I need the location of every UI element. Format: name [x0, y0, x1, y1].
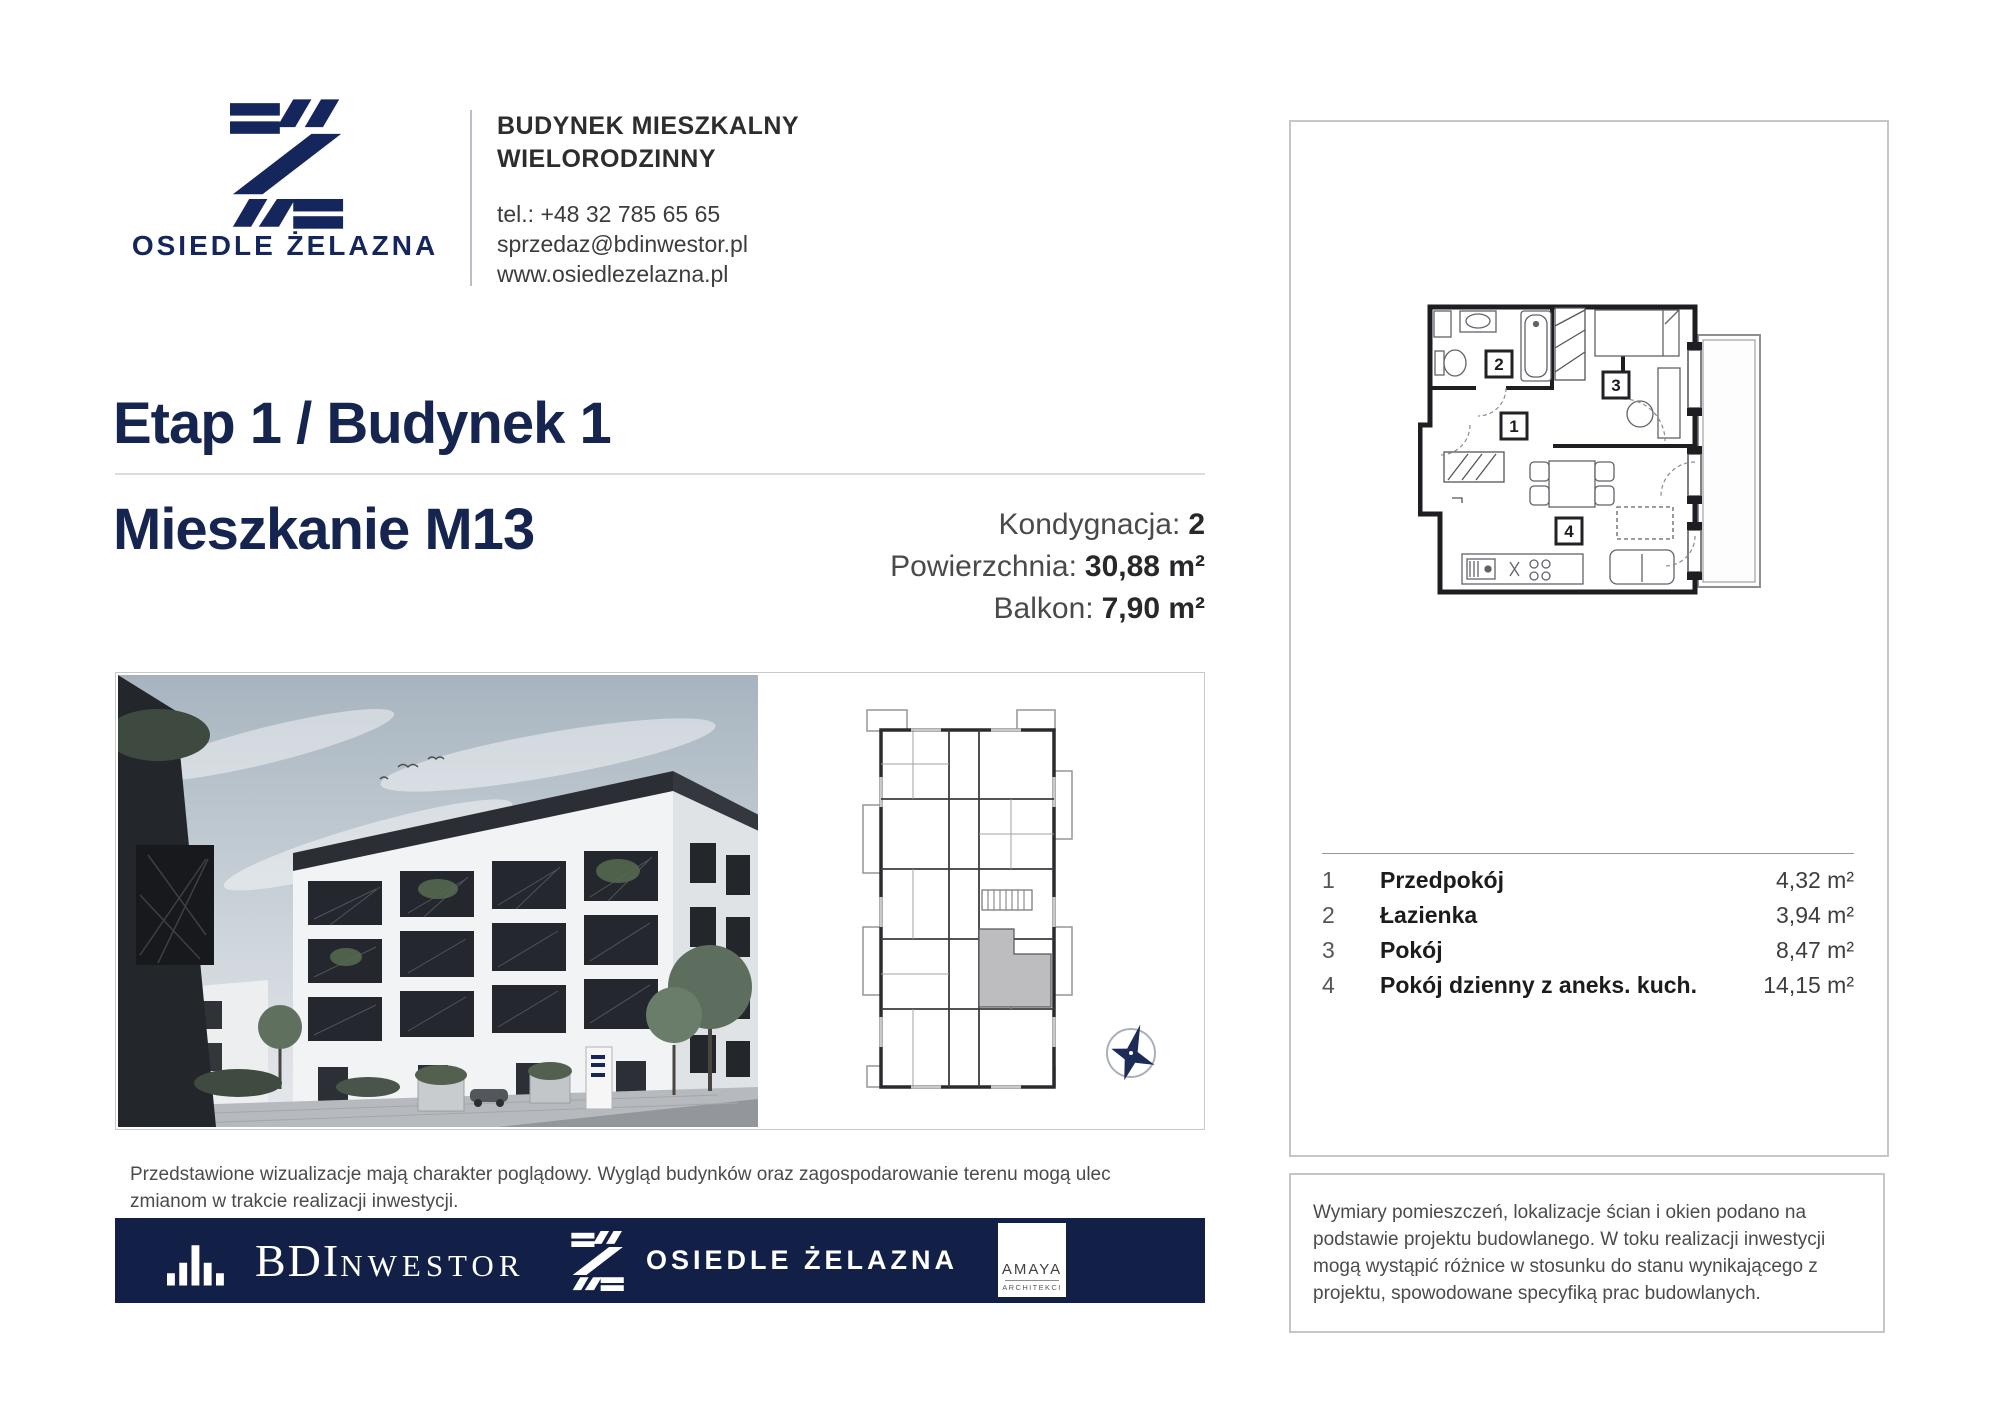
kitchen-fixtures [1462, 554, 1583, 584]
footer-bar: BDINWESTOR OSIEDLE ŻELAZNA AMAYA ARCHITE… [115, 1218, 1205, 1303]
estate-z-icon [570, 1231, 626, 1291]
website-link[interactable]: www.osiedlezelazna.pl [497, 259, 917, 289]
room-list-row: 2 Łazienka 3,94 m² [1322, 902, 1854, 937]
estate-sign [586, 1047, 612, 1109]
architect-sub: ARCHITEKCI [1002, 1283, 1061, 1292]
bdinwestor-bars-icon [167, 1235, 237, 1287]
summary-floor: Kondygnacja:2 [705, 508, 1205, 550]
apartment-floor-plan: 2 1 3 4 [1418, 302, 1768, 597]
brand-name: OSIEDLE ŻELAZNA [105, 230, 465, 262]
building-render-photo [118, 675, 758, 1127]
phone-number: tel.: +48 32 785 65 65 [497, 199, 917, 229]
header-divider [470, 110, 472, 286]
apartment-title: Mieszkanie M13 [113, 496, 534, 563]
room-list: 1 Przedpokój 4,32 m² 2 Łazienka 3,94 m² … [1322, 853, 1854, 1007]
architect-logo: AMAYA ARCHITEKCI [998, 1223, 1066, 1297]
plan-room-4: 4 [1564, 522, 1574, 541]
plan-room-1: 1 [1509, 417, 1518, 436]
building-type-line2: WIELORODZINNY [497, 143, 917, 176]
building-type-line1: BUDYNEK MIESZKALNY [497, 110, 917, 143]
osiedle-zelazna-logo-icon [230, 95, 345, 233]
apartment-flyer-page: OSIEDLE ŻELAZNA BUDYNEK MIESZKALNY WIELO… [0, 0, 2000, 1425]
room-list-row: 4 Pokój dzienny z aneks. kuch. 14,15 m² [1322, 972, 1854, 1007]
email-link[interactable]: sprzedaz@bdinwestor.pl [497, 229, 917, 259]
room-list-row: 1 Przedpokój 4,32 m² [1322, 867, 1854, 902]
stage-title: Etap 1 / Budynek 1 [113, 390, 611, 457]
room-list-row: 3 Pokój 8,47 m² [1322, 937, 1854, 972]
apartment-panel: 2 1 3 4 1 Przedpokój 4,32 m² 2 Łazienka … [1289, 120, 1889, 1157]
estate-logo: OSIEDLE ŻELAZNA [570, 1218, 958, 1303]
title-divider [115, 473, 1205, 475]
compass-icon [1103, 1018, 1165, 1087]
staircase [982, 890, 1032, 910]
developer-name-secondary: NWESTOR [340, 1248, 524, 1284]
developer-logo: BDINWESTOR [167, 1218, 525, 1303]
plan-room-3: 3 [1611, 376, 1620, 395]
plan-room-2: 2 [1494, 355, 1503, 374]
apartment-summary: Kondygnacja:2 Powierzchnia:30,88 m² Balk… [705, 508, 1205, 634]
architect-divider [1005, 1280, 1059, 1281]
dimensions-disclaimer-box: Wymiary pomieszczeń, lokalizacje ścian i… [1289, 1173, 1885, 1333]
building-storey-plan [851, 687, 1191, 1112]
developer-name-primary: BDI [255, 1234, 340, 1287]
summary-balcony: Balkon:7,90 m² [705, 592, 1205, 634]
dimensions-disclaimer: Wymiary pomieszczeń, lokalizacje ścian i… [1313, 1199, 1858, 1307]
visualization-box [115, 672, 1205, 1130]
architect-name: AMAYA [1002, 1261, 1062, 1278]
visualization-disclaimer: Przedstawione wizualizacje mają charakte… [130, 1161, 1175, 1215]
foreground-structure [118, 675, 216, 1127]
summary-area: Powierzchnia:30,88 m² [705, 550, 1205, 592]
estate-name: OSIEDLE ŻELAZNA [646, 1245, 958, 1276]
header-info: BUDYNEK MIESZKALNY WIELORODZINNY tel.: +… [497, 110, 917, 289]
